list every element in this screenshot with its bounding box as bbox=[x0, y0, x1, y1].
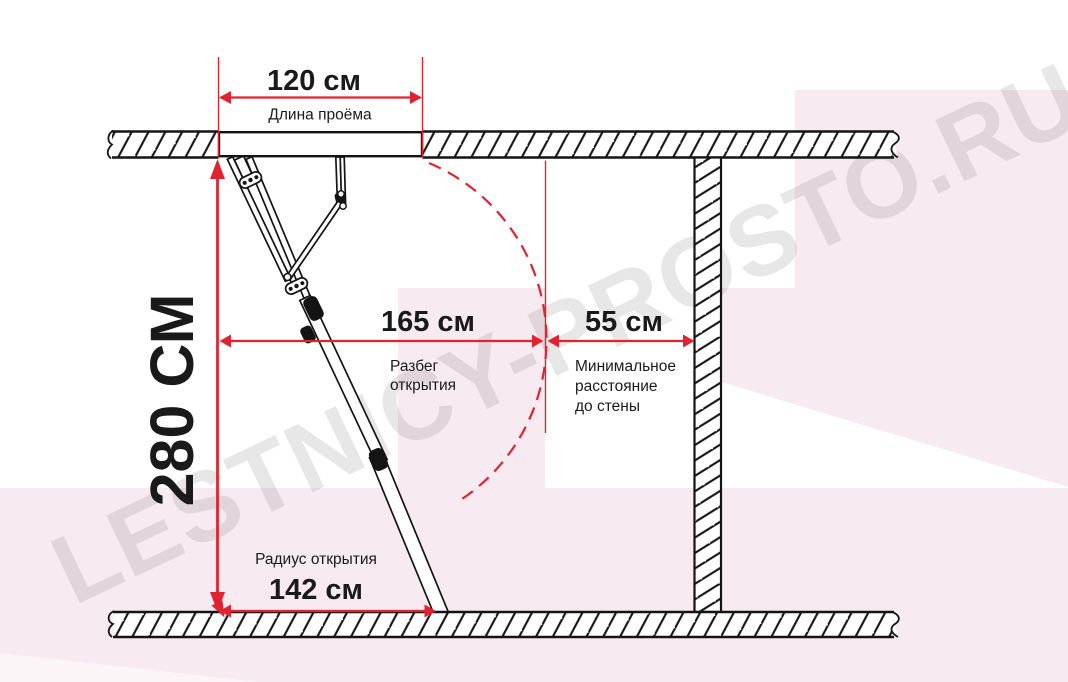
svg-text:до стены: до стены bbox=[575, 398, 640, 415]
svg-text:открытия: открытия bbox=[390, 377, 456, 394]
svg-text:расстояние: расстояние bbox=[575, 378, 658, 395]
svg-text:280 СМ: 280 СМ bbox=[138, 294, 206, 507]
svg-text:120 см: 120 см bbox=[267, 65, 361, 97]
svg-text:Минимальное: Минимальное bbox=[575, 358, 676, 375]
svg-text:142 см: 142 см bbox=[269, 574, 363, 606]
svg-text:55 см: 55 см bbox=[585, 306, 663, 338]
svg-text:165 см: 165 см bbox=[381, 306, 475, 338]
svg-text:Разбег: Разбег bbox=[390, 358, 439, 375]
svg-text:Длина проёма: Длина проёма bbox=[268, 107, 372, 124]
svg-text:Радиус открытия: Радиус открытия bbox=[255, 551, 377, 568]
